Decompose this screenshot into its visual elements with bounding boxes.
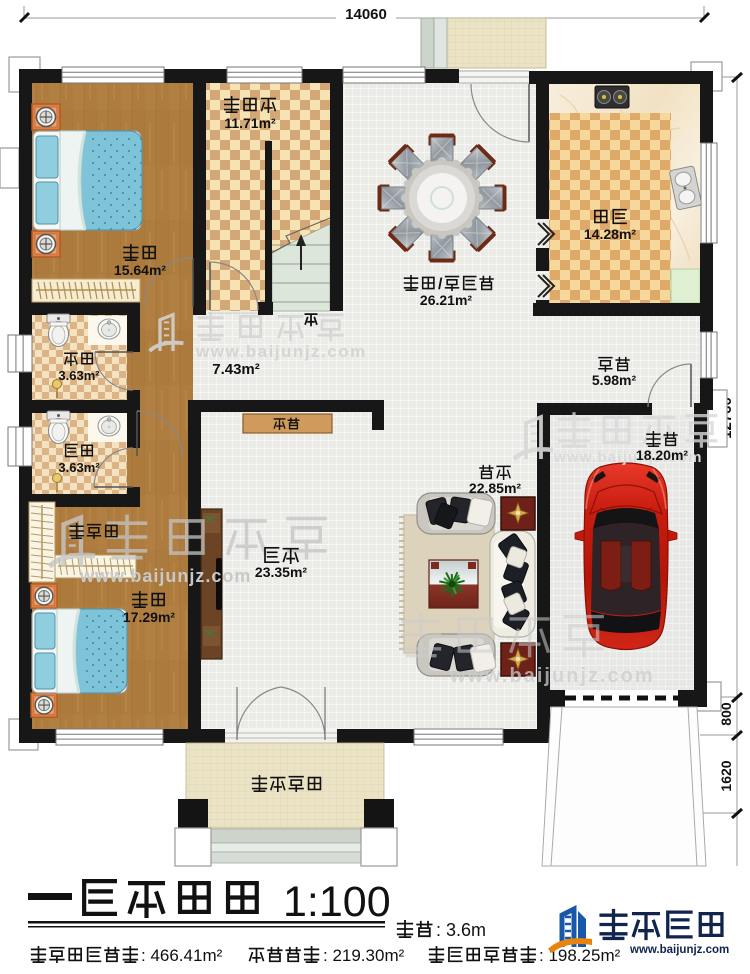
svg-text:www.baijunjz.com: www.baijunjz.com: [449, 665, 655, 687]
svg-text:/: /: [438, 276, 443, 293]
svg-text:: 3.6m: : 3.6m: [436, 920, 486, 940]
svg-text:: 219.30m²: : 219.30m²: [323, 946, 405, 965]
svg-text:15.64m²: 15.64m²: [114, 262, 166, 278]
svg-text:23.35m²: 23.35m²: [255, 564, 307, 580]
svg-text:5.98m²: 5.98m²: [592, 372, 637, 388]
svg-text:14060: 14060: [345, 6, 387, 23]
svg-text:14.28m²: 14.28m²: [584, 226, 636, 242]
svg-text:3.63m²: 3.63m²: [58, 460, 100, 475]
svg-text:22.85m²: 22.85m²: [469, 480, 521, 496]
svg-text:www.baijunjz.com: www.baijunjz.com: [195, 342, 367, 361]
svg-text:3.63m²: 3.63m²: [58, 368, 100, 383]
svg-text:www.baijunjz.com: www.baijunjz.com: [79, 566, 251, 586]
svg-text:1:100: 1:100: [283, 878, 391, 926]
svg-text:18.20m²: 18.20m²: [636, 447, 688, 463]
svg-text:17.29m²: 17.29m²: [123, 609, 175, 625]
svg-text:7.43m²: 7.43m²: [212, 361, 260, 378]
svg-text:11.71m²: 11.71m²: [224, 115, 276, 131]
svg-text:www.baijunjz.com: www.baijunjz.com: [629, 944, 729, 956]
svg-text:26.21m²: 26.21m²: [420, 292, 472, 308]
svg-text:: 466.41m²: : 466.41m²: [141, 946, 223, 965]
svg-text:1620: 1620: [718, 760, 734, 791]
